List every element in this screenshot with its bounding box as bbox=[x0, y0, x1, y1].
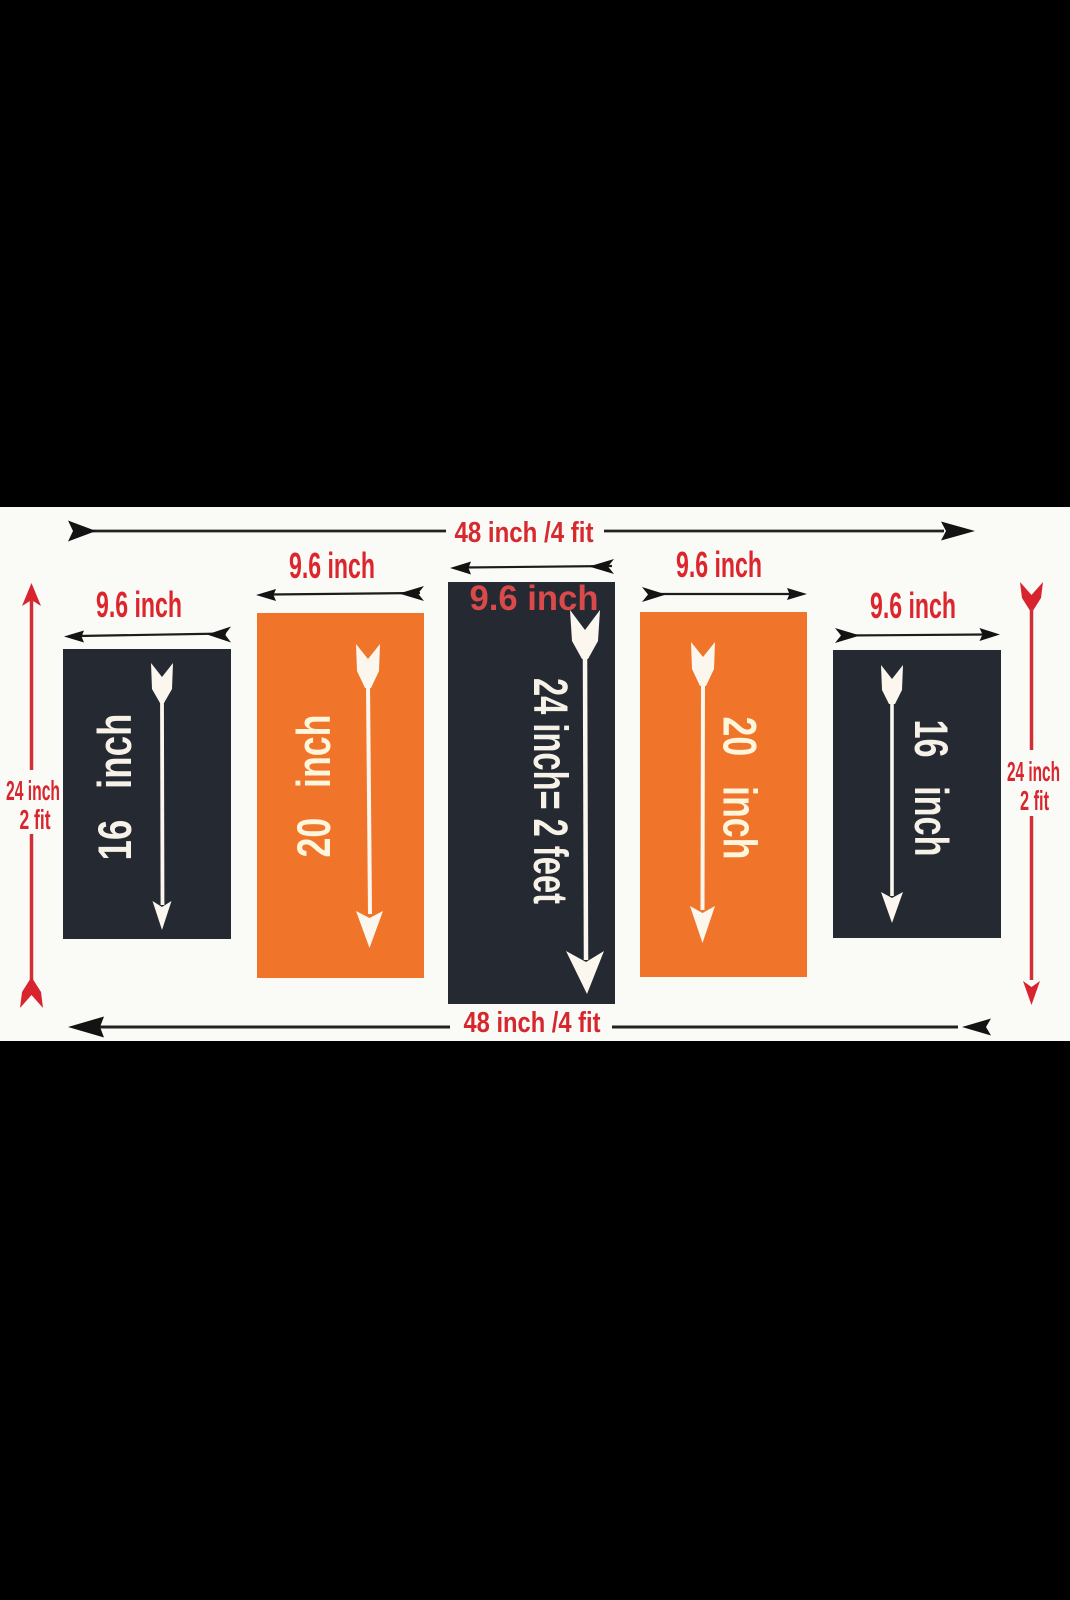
svg-text:9.6 inch: 9.6 inch bbox=[96, 584, 182, 625]
svg-text:9.6 inch: 9.6 inch bbox=[676, 544, 762, 585]
svg-text:20 inch: 20 inch bbox=[287, 715, 340, 858]
svg-text:9.6 inch: 9.6 inch bbox=[870, 585, 956, 626]
svg-text:2 fit: 2 fit bbox=[1020, 785, 1049, 816]
svg-text:20 inch: 20 inch bbox=[714, 717, 767, 860]
svg-text:48 inch /4 fit: 48 inch /4 fit bbox=[455, 517, 594, 549]
svg-text:9.6 inch: 9.6 inch bbox=[470, 579, 599, 618]
svg-text:24 inch: 24 inch bbox=[6, 775, 60, 806]
svg-text:16 inch: 16 inch bbox=[905, 720, 958, 857]
svg-text:16 inch: 16 inch bbox=[88, 714, 141, 861]
svg-text:48 inch /4 fit: 48 inch /4 fit bbox=[464, 1007, 601, 1039]
svg-text:24 inch= 2 feet: 24 inch= 2 feet bbox=[523, 678, 576, 904]
svg-text:2 fit: 2 fit bbox=[20, 804, 51, 835]
svg-text:24 inch: 24 inch bbox=[1007, 756, 1060, 787]
svg-text:9.6 inch: 9.6 inch bbox=[289, 545, 375, 586]
